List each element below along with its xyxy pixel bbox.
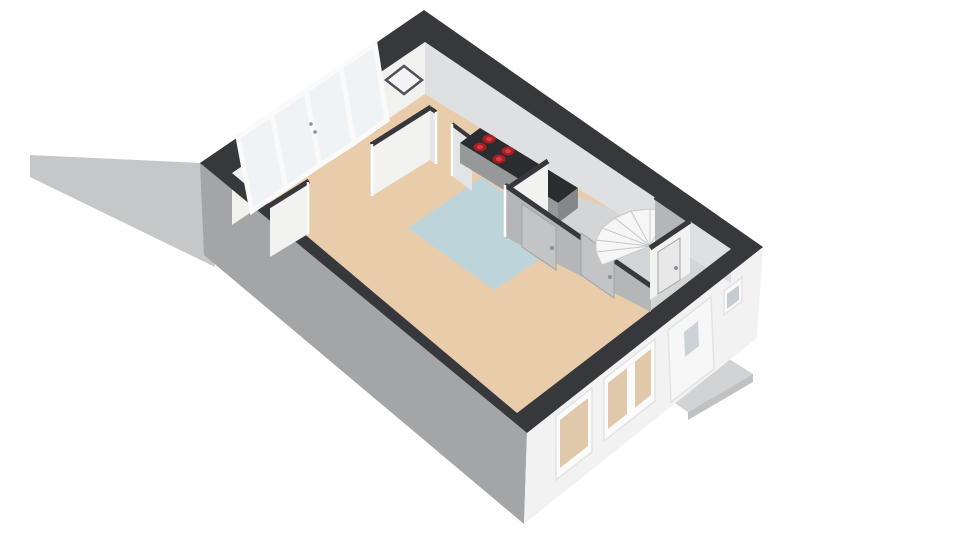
burner-ring [477,145,483,149]
door-handle [550,246,554,250]
floorplan-viewport[interactable] [0,0,960,540]
floorplan-canvas[interactable] [0,0,960,540]
door-handle [674,266,678,270]
door-handle [608,275,612,279]
facade-window-mullion [627,362,635,420]
french-door-handle [309,122,313,126]
french-door-handle [313,130,317,134]
ground-shadow-left [30,155,215,267]
burner-ring [486,137,492,141]
burner-ring [496,157,502,161]
burner-ring [505,149,511,153]
